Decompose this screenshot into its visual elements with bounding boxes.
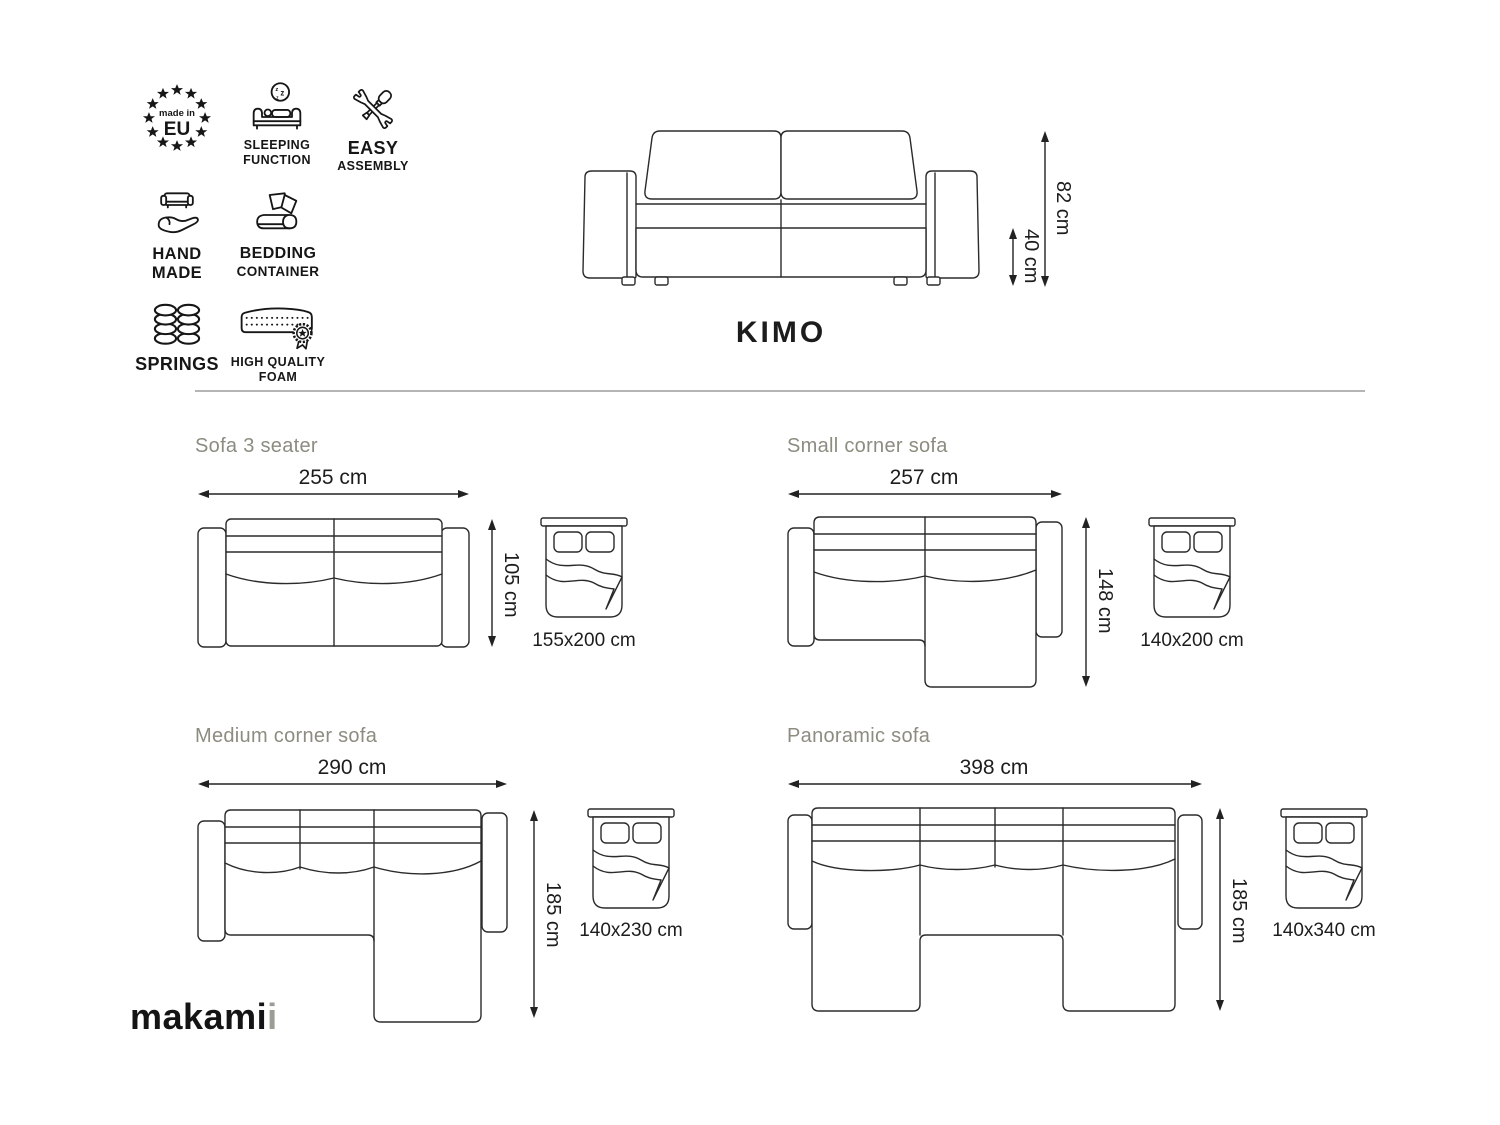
badge-sleeping-function: z z z SLEEPING FUNCTION	[227, 82, 327, 168]
sofa-top-view-panoramic	[787, 807, 1203, 1012]
foam-label: FOAM	[222, 370, 334, 385]
bed-size-label-small-corner: 140x200 cm	[1107, 630, 1277, 652]
depth-arrow-3-seater	[485, 518, 499, 648]
easy-assembly-icon	[347, 84, 399, 134]
depth-label-3-seater: 105 cm	[499, 552, 522, 618]
brand-logo-black: makami	[130, 996, 267, 1037]
section-title-sofa-3-seater: Sofa 3 seater	[195, 435, 318, 458]
springs-icon	[153, 303, 201, 347]
depth-arrow-small-corner	[1079, 516, 1093, 688]
bed-size-label-panoramic: 140x340 cm	[1239, 920, 1409, 942]
bedding-container-icon	[253, 190, 303, 240]
divider-line	[195, 390, 1365, 392]
brand-logo-gray: i	[267, 996, 278, 1037]
made-in-eu-icon: made in EU	[139, 80, 215, 156]
eu-label: EU	[164, 119, 190, 140]
section-title-medium-corner: Medium corner sofa	[195, 725, 377, 748]
sofa-top-view-3-seater	[197, 518, 470, 648]
brand-logo: makamii	[130, 996, 278, 1038]
depth-arrow-panoramic	[1213, 807, 1227, 1012]
badge-hand-made: HAND MADE	[127, 190, 227, 284]
width-arrow-3-seater	[197, 487, 470, 501]
bed-size-label-medium-corner: 140x230 cm	[546, 920, 716, 942]
springs-label: SPRINGS	[127, 354, 227, 375]
hand-label: HAND	[127, 245, 227, 264]
bed-icon-medium-corner	[587, 808, 675, 918]
hand-made-icon	[152, 190, 202, 240]
easy-label: EASY	[323, 138, 423, 159]
sleeping-function-icon: z z z	[250, 82, 304, 132]
made-label: MADE	[127, 264, 227, 283]
section-title-panoramic: Panoramic sofa	[787, 725, 930, 748]
badge-easy-assembly: EASY ASSEMBLY	[323, 84, 423, 174]
svg-text:z: z	[275, 87, 278, 93]
sleeping-function-label-2: FUNCTION	[227, 153, 327, 168]
made-in-label: made in	[159, 108, 195, 119]
badge-springs: SPRINGS	[127, 303, 227, 375]
depth-arrow-medium-corner	[527, 809, 541, 1019]
bedding-label: BEDDING	[222, 245, 334, 264]
bed-size-label-3-seater: 155x200 cm	[499, 630, 669, 652]
sofa-top-view-medium-corner	[197, 809, 508, 1023]
section-title-small-corner: Small corner sofa	[787, 435, 948, 458]
svg-text:z: z	[280, 88, 284, 97]
assembly-label: ASSEMBLY	[323, 159, 423, 174]
total-height-arrow	[1038, 130, 1052, 288]
sofa-front-view-drawing	[578, 128, 984, 290]
sofa-top-view-small-corner	[787, 516, 1063, 688]
product-spec-sheet: made in EU z z z SLEEPING FUNCTION	[0, 0, 1500, 1125]
container-label: CONTAINER	[222, 264, 334, 280]
total-height-label: 82 cm	[1051, 181, 1074, 235]
high-quality-label: HIGH QUALITY	[222, 355, 334, 370]
sleeping-function-label-1: SLEEPING	[227, 138, 327, 153]
width-arrow-panoramic	[787, 777, 1203, 791]
badge-bedding-container: BEDDING CONTAINER	[222, 190, 334, 280]
high-quality-foam-icon	[234, 306, 322, 350]
product-title: KIMO	[681, 316, 881, 350]
badge-made-in-eu: made in EU	[134, 80, 220, 156]
badge-high-quality-foam: HIGH QUALITY FOAM	[222, 306, 334, 385]
depth-label-small-corner: 148 cm	[1093, 568, 1116, 634]
bed-icon-small-corner	[1148, 517, 1236, 627]
seat-height-arrow	[1006, 227, 1020, 287]
width-arrow-small-corner	[787, 487, 1063, 501]
bed-icon-panoramic	[1280, 808, 1368, 918]
width-arrow-medium-corner	[197, 777, 508, 791]
bed-icon-3-seater	[540, 517, 628, 627]
